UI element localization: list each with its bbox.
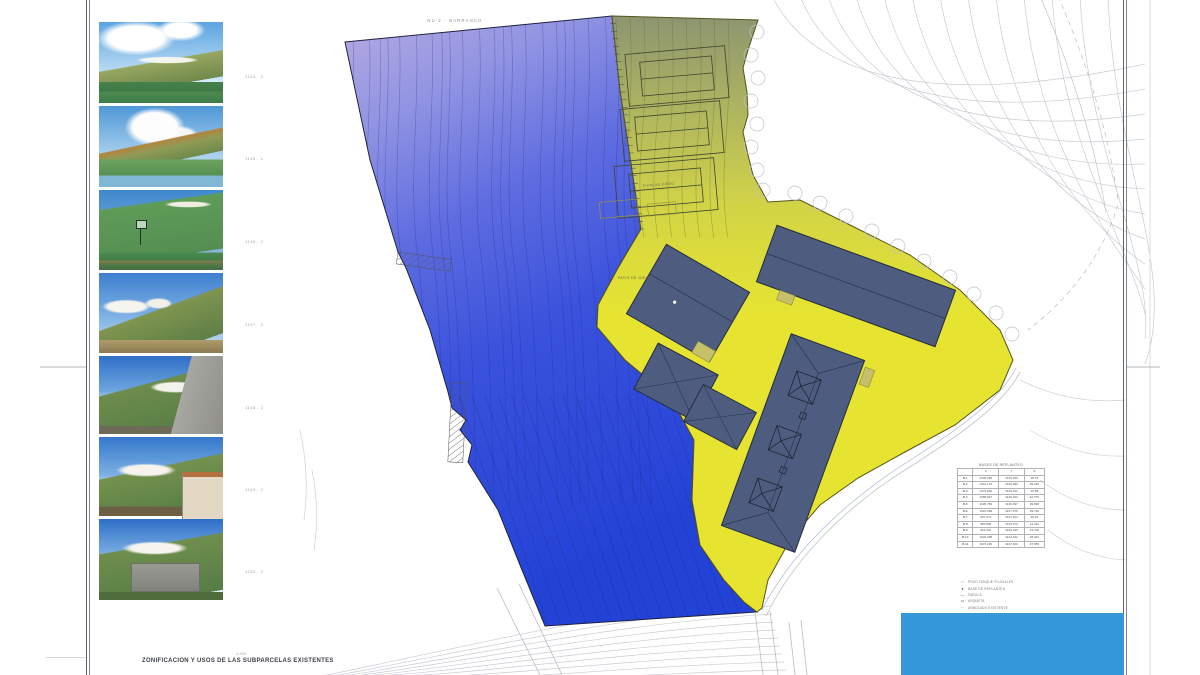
photo-label-5: 1148 - 2 — [245, 405, 263, 410]
site-photo-6 — [99, 437, 223, 516]
table-header-row: XYZ — [958, 469, 1045, 476]
basketball-hoop-pole — [140, 228, 141, 246]
dashes-icon: ┄ — [957, 606, 968, 610]
site-photo-4 — [99, 273, 223, 353]
rect-icon: ▭ — [957, 599, 968, 603]
legend-item-label: ARBOLADO EXISTENTE — [968, 606, 1008, 610]
site-photo-1 — [99, 22, 223, 103]
legend: ○POZO TANQUE PLUVIALES●BASE DE REPLANTEO… — [957, 579, 1067, 611]
dot-icon: ● — [957, 587, 968, 591]
table-row: B-111047.2393137.32037.585 — [958, 541, 1045, 548]
scale-note: 1:200 — [236, 651, 246, 656]
legend-item-label: BASE DE REPLANTEO — [968, 587, 1005, 591]
patio-label: PATIO DE JUEGO — [618, 276, 652, 280]
table-row: B-51035.7833136.09739.838 — [958, 501, 1045, 508]
table-row: B-11030.2993136.03038.79 — [958, 475, 1045, 482]
table-row: B-21041.1763135.08039.235 — [958, 482, 1045, 489]
photo-label-2: 1145 - 2 — [245, 156, 263, 161]
table-row: B-41068.8273136.49340.575 — [958, 495, 1045, 502]
survey-table-title: BASES DE REPLANTEO — [957, 463, 1045, 467]
table-row: B-8980.8383139.07541.324 — [958, 521, 1045, 528]
legend-item-label: FAROLA — [968, 593, 982, 597]
site-photo-5 — [99, 356, 223, 434]
terracotta-roof-building — [182, 472, 223, 521]
site-photo-3 — [99, 190, 223, 270]
legend-item-label: ARQUETA — [968, 599, 985, 603]
photo-label-7: 1150 - 2 — [245, 569, 263, 574]
photo-label-1: 1144 - 2 — [245, 74, 263, 79]
flat-roof-building — [131, 563, 200, 593]
photo-label-6: 1149 - 2 — [245, 487, 263, 492]
legend-item-label: POZO TANQUE PLUVIALES — [968, 580, 1013, 584]
site-photo-2 — [99, 106, 223, 187]
dash-icon: — — [957, 593, 968, 597]
title-block-cover — [901, 613, 1124, 675]
table-row: B-101032.0983143.33248.024 — [958, 534, 1045, 541]
plan-sheet: PATIO DE JUEGO PISTA DE JUEGO NU-2 - BAR… — [0, 0, 1200, 675]
legend-item: ┄ARBOLADO EXISTENTE — [957, 605, 1067, 611]
top-note: NU-2 - BARRANCO — [427, 18, 482, 23]
table-row: B-7997.0743137.19439.23 — [958, 515, 1045, 522]
table-row: B-61010.2883137.07539.726 — [958, 508, 1045, 515]
photo-label-4: 1147 - 2 — [245, 322, 263, 327]
photo-label-3: 1146 - 2 — [245, 239, 263, 244]
sheet-title: ZONIFICACION Y USOS DE LAS SUBPARCELAS E… — [142, 658, 334, 664]
table-row: B-9962.3013140.33543.708 — [958, 528, 1045, 535]
circle-icon: ○ — [957, 580, 968, 584]
survey-base-table: BASES DE REPLANTEO XYZB-11030.2993136.03… — [957, 463, 1045, 548]
survey-table-grid: XYZB-11030.2993136.03038.79B-21041.17631… — [957, 468, 1045, 548]
table-row: B-31079.8023135.43240.88 — [958, 488, 1045, 495]
site-photo-7 — [99, 519, 223, 600]
basketball-hoop — [136, 220, 147, 229]
